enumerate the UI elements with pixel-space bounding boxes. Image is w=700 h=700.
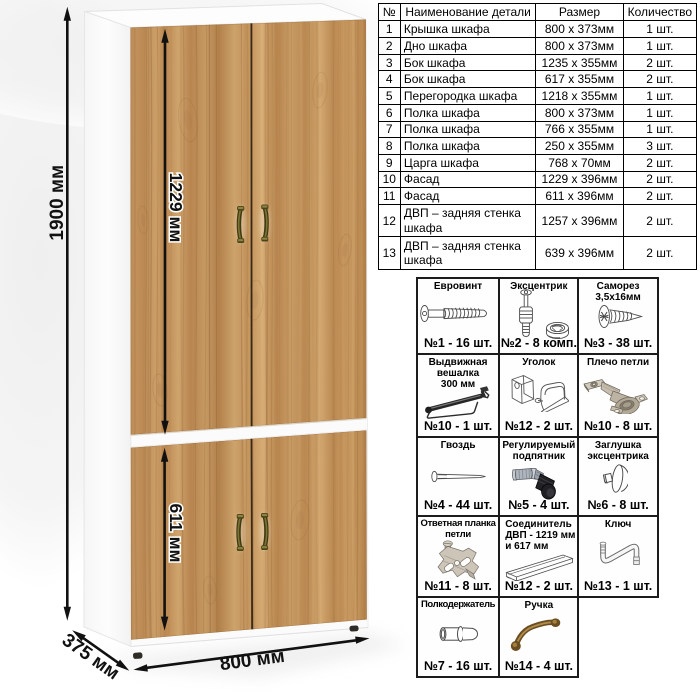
svg-text:611 мм: 611 мм [166,504,186,563]
svg-text:1229 мм: 1229 мм [166,173,186,243]
svg-text:1900 мм: 1900 мм [47,165,68,241]
